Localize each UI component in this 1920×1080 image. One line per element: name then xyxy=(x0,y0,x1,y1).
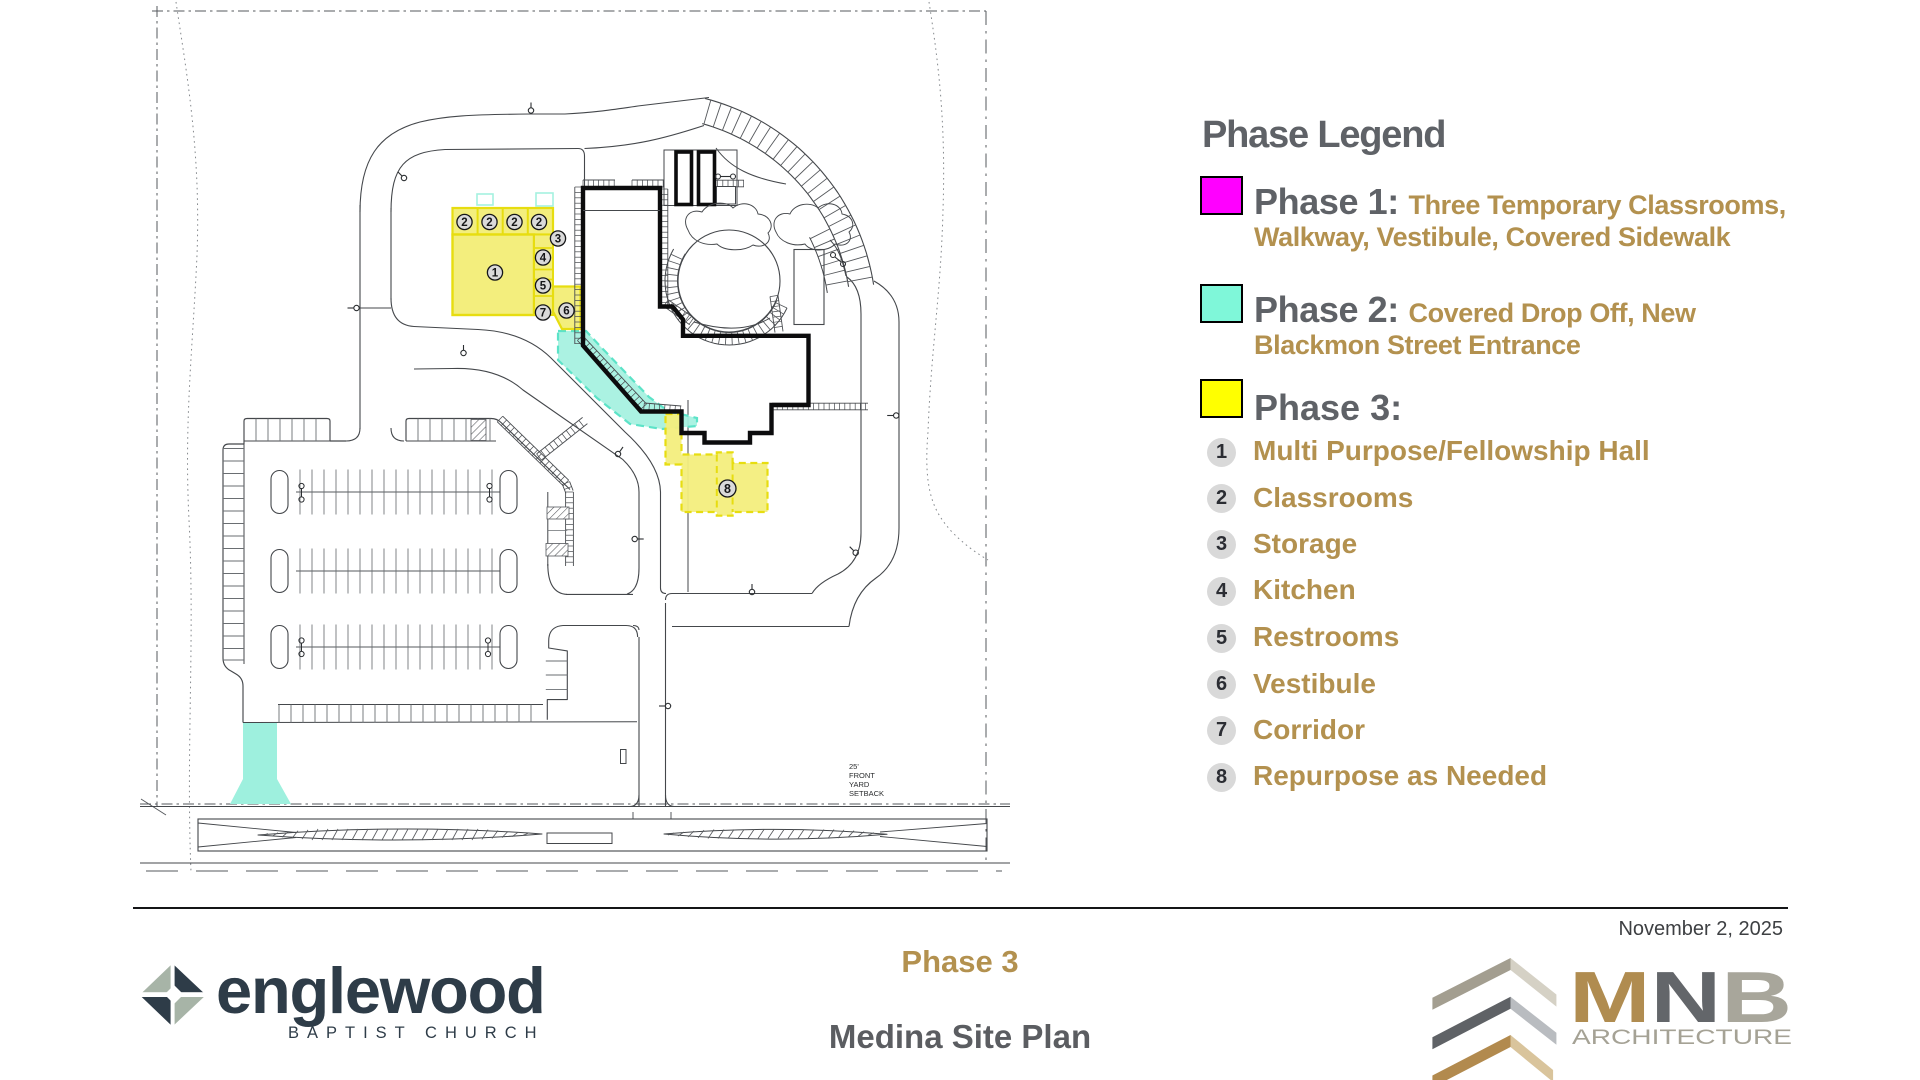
svg-text:7: 7 xyxy=(540,308,546,320)
svg-text:6: 6 xyxy=(563,306,569,318)
svg-text:2: 2 xyxy=(511,217,517,229)
svg-text:5: 5 xyxy=(540,281,547,293)
svg-text:2: 2 xyxy=(486,217,492,229)
svg-text:YARD: YARD xyxy=(849,780,870,789)
svg-text:FRONT: FRONT xyxy=(849,771,875,780)
svg-text:25': 25' xyxy=(849,762,859,771)
svg-text:2: 2 xyxy=(461,217,467,229)
svg-text:englewood: englewood xyxy=(216,954,545,1027)
svg-text:8: 8 xyxy=(724,482,731,496)
svg-text:BAPTIST CHURCH: BAPTIST CHURCH xyxy=(288,1024,545,1042)
svg-text:ARCHITECTURE: ARCHITECTURE xyxy=(1572,1026,1792,1049)
svg-text:3: 3 xyxy=(555,234,561,246)
svg-text:2: 2 xyxy=(536,217,542,229)
svg-text:SETBACK: SETBACK xyxy=(849,789,884,798)
svg-text:1: 1 xyxy=(492,268,499,280)
svg-text:4: 4 xyxy=(540,253,547,265)
